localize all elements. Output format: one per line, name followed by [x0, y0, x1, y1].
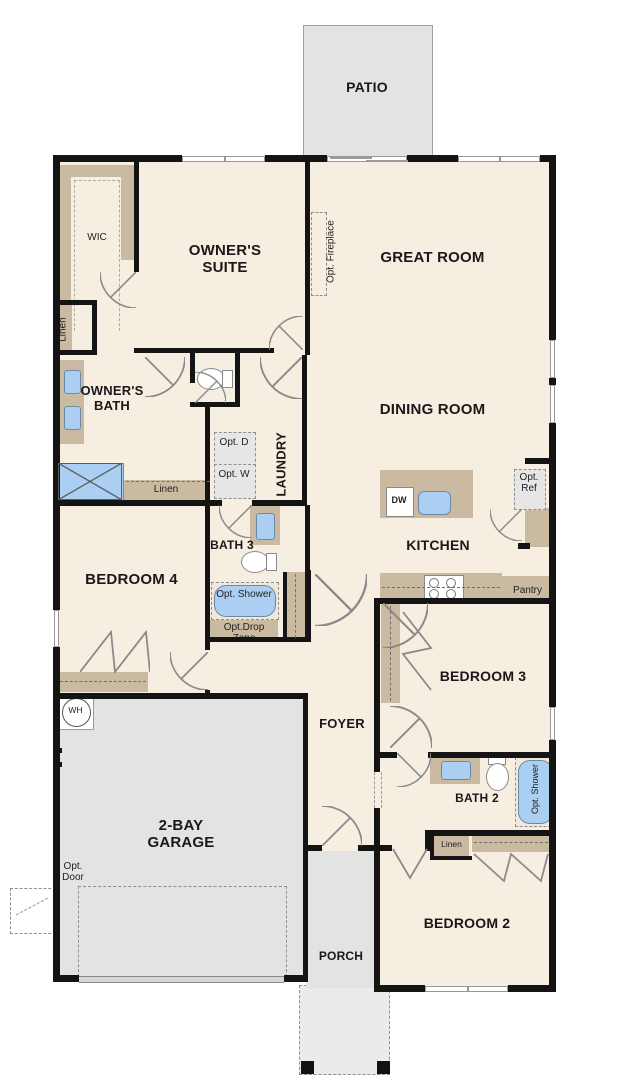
door-swing — [490, 509, 522, 541]
wall — [208, 637, 308, 642]
closet-label-linen-bath: Linen — [126, 484, 206, 495]
sliding-door — [327, 156, 407, 162]
wall — [378, 985, 425, 992]
opt-ref-label: Opt. Ref — [513, 472, 545, 494]
wall — [305, 505, 310, 573]
dashed-line — [60, 681, 146, 682]
room-label-bath3: BATH 3 — [209, 539, 255, 553]
window — [550, 707, 555, 740]
wall — [549, 740, 556, 992]
drop-zone-locker — [287, 572, 305, 640]
dashed-line — [390, 606, 391, 701]
wall — [549, 423, 556, 707]
dashed-line — [126, 481, 210, 482]
wall — [53, 748, 62, 753]
door-swing — [322, 806, 362, 846]
room-label-porch: PORCH — [309, 950, 373, 964]
wall — [430, 836, 434, 860]
wall — [53, 500, 208, 506]
door-swing — [390, 706, 432, 748]
opt-fireplace-label: Opt. Fireplace — [325, 208, 336, 296]
wall — [303, 699, 308, 975]
wall — [205, 407, 210, 505]
wall — [305, 155, 310, 355]
room-label-kitchen: KITCHEN — [393, 538, 483, 554]
room-label-patio: PATIO — [303, 80, 431, 96]
room-label-bath2: BATH 2 — [455, 792, 499, 806]
door-swing — [145, 357, 185, 397]
wic-shelf — [121, 165, 134, 260]
wall — [134, 162, 139, 272]
opt-dryer-label: Opt. D — [214, 437, 254, 448]
window — [458, 156, 540, 162]
bedroom4-closet-shelf — [58, 672, 148, 692]
door-swing — [195, 372, 226, 403]
opt-door-box — [10, 888, 56, 934]
wall — [134, 348, 274, 353]
room-label-wic: WIC — [75, 232, 119, 243]
door-swing — [315, 574, 367, 626]
room-label-pantry: Pantry — [502, 585, 553, 596]
window — [550, 385, 555, 423]
dashed-line — [295, 574, 296, 638]
bifold-door — [472, 852, 550, 883]
bifold-door — [392, 848, 428, 880]
toilet-bowl — [486, 763, 509, 791]
wall — [525, 458, 556, 464]
wall — [53, 975, 79, 982]
wall — [53, 155, 182, 162]
wall — [53, 350, 97, 355]
room-label-dining-room: DINING ROOM — [360, 401, 505, 418]
wall — [374, 598, 380, 774]
porch-slab — [306, 851, 376, 988]
kitchen-sink — [418, 491, 451, 515]
wall — [235, 353, 240, 407]
wall — [92, 300, 97, 355]
wall — [252, 500, 307, 506]
room-label-great-room: GREAT ROOM — [355, 249, 510, 266]
wic-shelf-line — [74, 180, 120, 331]
opt-shower-bath2-label: Opt. Shower — [530, 760, 540, 818]
wall — [378, 752, 397, 758]
opt-shower-bath3-label: Opt. Shower — [215, 589, 273, 600]
sink — [256, 513, 275, 540]
wall — [283, 572, 287, 640]
wall — [53, 693, 308, 699]
wall — [518, 543, 530, 549]
room-label-owners-suite: OWNER'S SUITE — [170, 242, 280, 276]
door-swing — [100, 272, 136, 308]
room-label-garage: 2-BAY GARAGE — [136, 817, 226, 851]
wall — [430, 856, 472, 860]
shower-cross — [58, 463, 122, 500]
door-swing — [269, 316, 303, 350]
dashed-line — [382, 587, 500, 588]
window — [182, 156, 265, 162]
room-label-bedroom2: BEDROOM 2 — [404, 916, 530, 932]
window — [550, 340, 555, 378]
wall — [374, 851, 380, 992]
wall — [508, 985, 556, 992]
room-label-foyer: FOYER — [309, 717, 375, 732]
wall — [308, 845, 322, 851]
closet-label-linen-bath2: Linen — [434, 840, 469, 850]
toilet-tank — [266, 553, 277, 571]
wall — [302, 355, 307, 505]
room-label-bedroom3: BEDROOM 3 — [420, 669, 546, 685]
room-label-bedroom4: BEDROOM 4 — [74, 571, 189, 588]
cased-opening — [374, 772, 382, 808]
wall — [428, 752, 556, 758]
opt-washer-label: Opt. W — [214, 469, 254, 480]
dishwasher-label: DW — [386, 495, 412, 505]
sink — [441, 761, 471, 780]
garage-door-outline — [78, 886, 287, 977]
dashed-line — [474, 842, 548, 843]
wall — [53, 300, 97, 305]
door-swing — [170, 652, 208, 690]
toilet-bowl — [241, 551, 269, 573]
door-swing — [219, 505, 252, 538]
garage-door-sill — [79, 976, 284, 983]
wall — [549, 378, 556, 385]
room-label-owners-bath: OWNER'S BATH — [68, 384, 156, 414]
wall — [425, 830, 556, 836]
door-swing — [260, 357, 302, 399]
wall — [284, 975, 308, 982]
window — [54, 610, 59, 647]
wall — [53, 762, 62, 767]
wall — [407, 155, 458, 162]
wall — [305, 570, 311, 642]
porch-post — [377, 1061, 390, 1074]
water-heater-label: WH — [58, 706, 93, 716]
wall — [540, 155, 556, 162]
door-swing — [397, 753, 431, 787]
bifold-door — [401, 610, 433, 692]
floor-plan: PATIO OWNER'S SUITE GREAT ROOM WIC Linen… — [0, 0, 634, 1090]
window — [425, 986, 508, 992]
wall — [549, 162, 556, 340]
bifold-door — [80, 630, 150, 673]
porch-post — [301, 1061, 314, 1074]
room-label-laundry: LAUNDRY — [275, 419, 290, 509]
wall — [265, 155, 327, 162]
wall — [205, 506, 210, 650]
wall — [378, 845, 392, 851]
wall — [53, 162, 60, 610]
